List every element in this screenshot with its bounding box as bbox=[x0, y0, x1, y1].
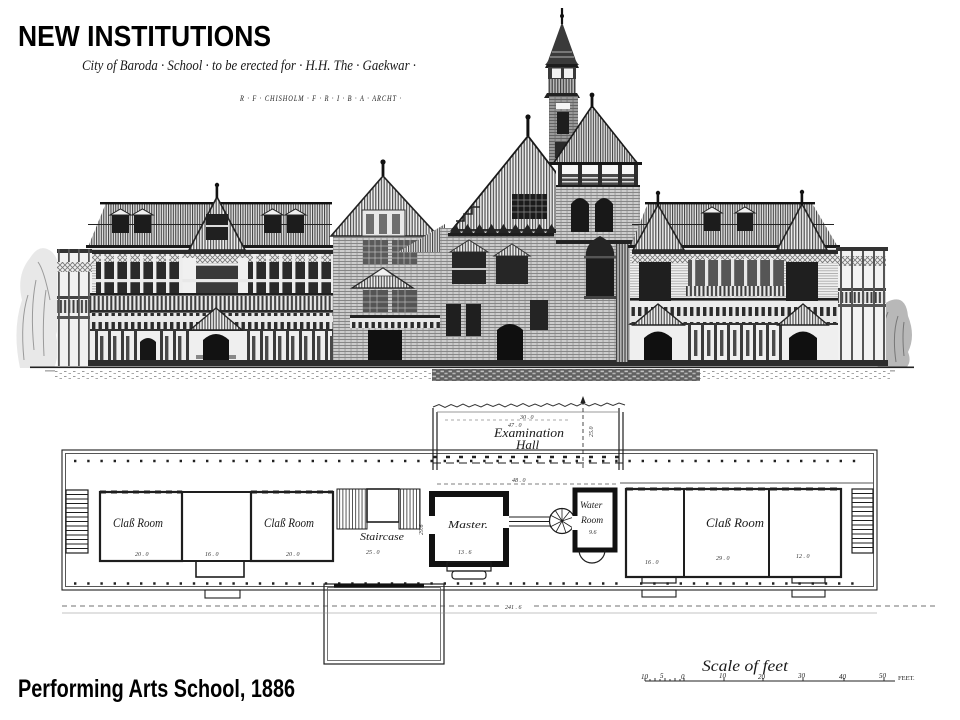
svg-text:47 . 0: 47 . 0 bbox=[508, 422, 522, 429]
svg-text:10: 10 bbox=[641, 673, 649, 681]
svg-text:10: 10 bbox=[719, 672, 727, 680]
svg-text:Claß Room: Claß Room bbox=[264, 516, 314, 530]
svg-text:City of Baroda · School · to b: City of Baroda · School · to be erected … bbox=[82, 58, 416, 74]
svg-text:30 . 0: 30 . 0 bbox=[519, 415, 534, 421]
svg-text:0: 0 bbox=[681, 673, 685, 681]
svg-text:16 . 0: 16 . 0 bbox=[205, 552, 219, 558]
svg-text:FEET.: FEET. bbox=[898, 675, 915, 682]
svg-text:20: 20 bbox=[758, 673, 766, 681]
svg-text:9.6: 9.6 bbox=[589, 530, 597, 536]
svg-text:Hall: Hall bbox=[515, 437, 540, 452]
svg-text:Scale of feet: Scale of feet bbox=[702, 658, 789, 675]
svg-text:Master.: Master. bbox=[447, 519, 488, 531]
svg-text:20 . 0: 20 . 0 bbox=[286, 552, 300, 558]
svg-text:25 . 0: 25 . 0 bbox=[366, 550, 380, 556]
svg-text:Staircase: Staircase bbox=[360, 532, 404, 543]
svg-text:20 . 0: 20 . 0 bbox=[135, 552, 149, 558]
svg-text:25.0: 25.0 bbox=[589, 427, 595, 438]
svg-text:16 . 0: 16 . 0 bbox=[645, 560, 659, 566]
svg-text:Water: Water bbox=[580, 501, 603, 511]
svg-text:R · F · CHISHOLM · F · R · I ·: R · F · CHISHOLM · F · R · I · B · A · A… bbox=[239, 94, 402, 103]
svg-text:29 . 0: 29 . 0 bbox=[716, 556, 730, 562]
svg-text:Claß Room: Claß Room bbox=[113, 516, 163, 530]
svg-text:Claß Room: Claß Room bbox=[706, 516, 764, 530]
svg-text:Performing Arts School, 1886: Performing Arts School, 1886 bbox=[18, 675, 295, 703]
svg-text:NEW INSTITUTIONS: NEW INSTITUTIONS bbox=[18, 21, 271, 53]
svg-text:40: 40 bbox=[839, 673, 847, 681]
svg-text:48 . 0: 48 . 0 bbox=[512, 477, 526, 484]
svg-text:Room: Room bbox=[580, 516, 603, 526]
svg-text:13 . 6: 13 . 6 bbox=[458, 550, 472, 556]
svg-text:29.6: 29.6 bbox=[419, 525, 425, 536]
svg-text:241 . 6: 241 . 6 bbox=[505, 604, 522, 611]
svg-text:50: 50 bbox=[879, 672, 887, 680]
svg-text:30: 30 bbox=[797, 672, 806, 680]
svg-text:12 . 0: 12 . 0 bbox=[796, 554, 810, 560]
svg-text:5: 5 bbox=[660, 672, 664, 680]
